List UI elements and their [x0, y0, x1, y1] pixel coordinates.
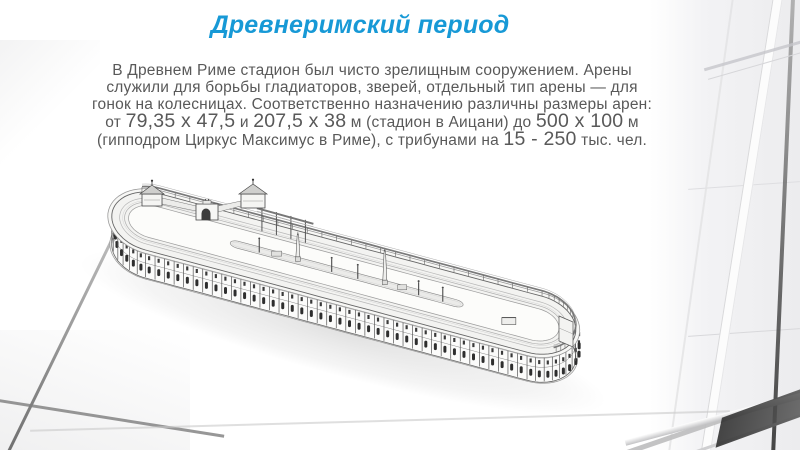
presentation-slide: Древнеримский период В Древнем Риме стад…	[0, 0, 800, 450]
body-segment: тыс. чел.	[577, 132, 647, 149]
body-segment: служили для борьбы гладиаторов, зверей, …	[106, 79, 637, 96]
slide-body-text: В Древнем Риме стадион был чисто зрелищн…	[52, 62, 692, 149]
body-segment: В Древнем Риме стадион был чисто зрелищн…	[112, 62, 632, 79]
body-line: (гипподром Циркус Максимус в Риме), с тр…	[52, 131, 692, 149]
dimension-value: 79,35 х 47,5	[126, 110, 236, 132]
body-line: В Древнем Риме стадион был чисто зрелищн…	[52, 62, 692, 79]
body-segment: и	[235, 114, 253, 131]
dimension-value: 207,5 х 38	[253, 110, 346, 132]
body-segment: от	[105, 114, 125, 131]
body-line: от 79,35 х 47,5 и 207,5 х 38 м (стадион …	[52, 113, 692, 131]
background-mullion	[697, 0, 785, 450]
dimension-value: 15 - 250	[503, 128, 576, 150]
circus-maximus-illustration	[55, 160, 665, 425]
background-horizontal-line	[688, 328, 800, 337]
background-horizontal-line	[688, 181, 800, 190]
body-line: служили для борьбы гладиаторов, зверей, …	[52, 79, 692, 96]
background-dark-wedge	[716, 386, 800, 447]
background-diagonal-beam	[708, 49, 800, 80]
background-mullion-dark	[771, 0, 796, 450]
body-segment: (гипподром Циркус Максимус в Риме), с тр…	[97, 132, 503, 149]
background-diagonal-beam	[704, 36, 800, 71]
body-segment: м	[623, 114, 638, 131]
slide-title: Древнеримский период	[40, 11, 680, 40]
